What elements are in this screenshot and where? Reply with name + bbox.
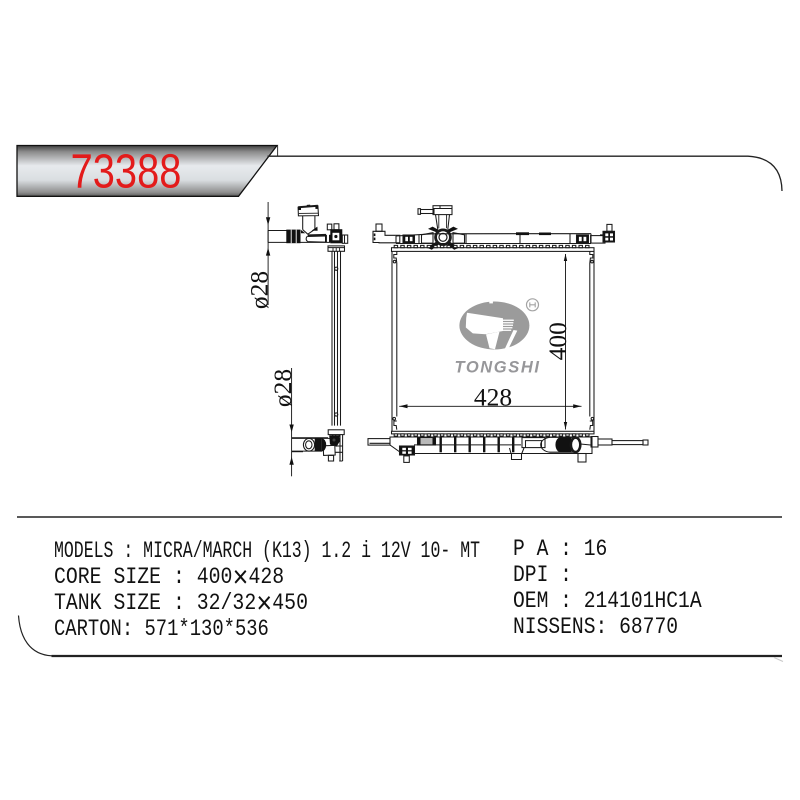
svg-text:428: 428 — [474, 382, 512, 411]
svg-text:DPI :: DPI : — [513, 563, 572, 589]
svg-text:MODELS : MICRA/MARCH (K13) 1.2: MODELS : MICRA/MARCH (K13) 1.2 i 12V 10-… — [54, 539, 480, 565]
svg-text:73388: 73388 — [71, 145, 182, 198]
svg-text:CARTON: 571*130*536: CARTON: 571*130*536 — [54, 616, 269, 642]
svg-text:ø28: ø28 — [268, 369, 297, 407]
svg-text:P A : 16: P A : 16 — [513, 537, 607, 563]
svg-text:TONGSHI: TONGSHI — [454, 359, 540, 377]
svg-text:ø28: ø28 — [245, 271, 274, 309]
svg-text:NISSENS: 68770: NISSENS: 68770 — [513, 615, 678, 641]
svg-text:OEM : 214101HC1A: OEM : 214101HC1A — [513, 589, 702, 615]
svg-text:400: 400 — [543, 322, 572, 360]
